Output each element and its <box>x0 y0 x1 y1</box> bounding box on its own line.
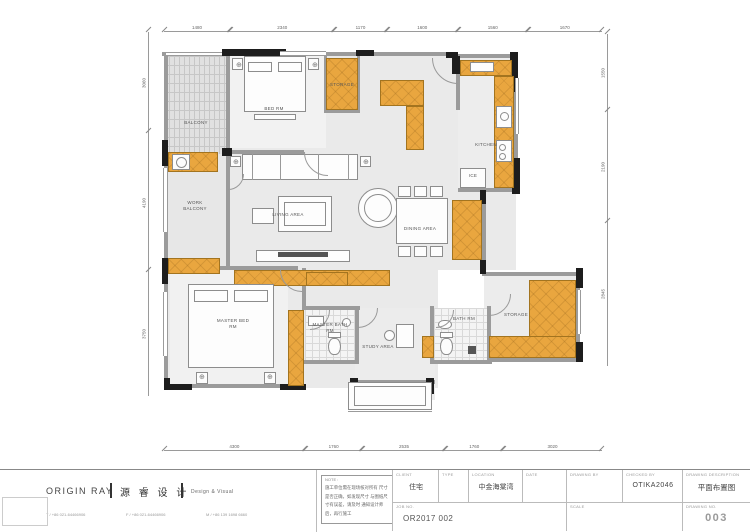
drawing-sheet: BALCONYBED RMSTORAGEKITCHENICEWORK BALCO… <box>0 0 750 531</box>
desk-chair <box>384 330 395 341</box>
dining-chair <box>414 246 427 257</box>
dining-chair <box>414 186 427 197</box>
window <box>577 290 581 334</box>
ceiling-light-icon: ⊕ <box>267 374 273 381</box>
logo-contact-m: M / +86 139 1698 6660 <box>206 512 247 517</box>
logo-text-en: ORIGIN RAY <box>46 486 113 496</box>
wall <box>226 152 230 266</box>
cell-drawing-no: DRAWING NO. 003 <box>682 502 750 531</box>
note-text: 施工单位需在现场核对所有 尺寸是否正确，如发现尺寸 与图纸尺寸有误差，请及时 通… <box>325 484 390 518</box>
lounge-chair-inner <box>364 194 392 222</box>
dimension-row-top: 148023401170160015601670 <box>164 31 602 39</box>
title-block: ORIGIN RAY 源 睿 设 计 Design & Visual T / +… <box>0 469 750 532</box>
storage-wardrobe <box>489 336 576 358</box>
ceiling-light-icon: ⊕ <box>199 374 205 381</box>
dimension-segment: 3060 <box>142 32 154 133</box>
sofa-line <box>280 154 281 180</box>
titleblock-divider <box>316 470 317 532</box>
wall-structure <box>576 268 583 288</box>
tv <box>278 252 328 257</box>
window <box>515 78 519 134</box>
kitchen-counter <box>494 76 514 188</box>
logo-contact-f: F / +86 021-64466906 <box>126 512 165 517</box>
dimension-segment: 1550 <box>601 34 613 112</box>
toilet <box>328 338 341 355</box>
dimension-segment: 1560 <box>458 31 528 39</box>
logo-divider <box>110 483 112 498</box>
wall <box>324 110 360 113</box>
room-label-living: LIVING AREA <box>258 212 318 218</box>
note-box: NOTE : 施工单位需在现场核对所有 尺寸是否正确，如发现尺寸 与图纸尺寸有误… <box>321 475 393 524</box>
client-label: CLIENT <box>396 472 412 477</box>
floor-plan: BALCONYBED RMSTORAGEKITCHENICEWORK BALCO… <box>152 22 618 448</box>
drawing-description-label: DRAWING DESCRIPTION <box>686 472 739 477</box>
drawing-description-value: 平面布置图 <box>683 482 750 493</box>
room-label-bed-rm: BED RM <box>244 106 304 112</box>
wall <box>304 360 358 364</box>
dimension-col-right: 155021902845 <box>601 34 613 366</box>
ceiling-light-icon: ⊕ <box>363 159 369 166</box>
drawing-no-value: 003 <box>683 512 750 524</box>
window <box>163 168 168 232</box>
room-label-storage-bottom: STORAGE <box>488 312 544 318</box>
date-label: DATE <box>526 472 538 477</box>
dimension-segment: 4190 <box>142 133 154 272</box>
logo-contact-t: T / +86 021-64466906 <box>46 512 85 517</box>
dimension-segment: 2845 <box>601 223 613 366</box>
cell-date: DATE <box>522 470 567 503</box>
sofa-line <box>252 154 253 180</box>
wall <box>484 272 580 276</box>
room-label-ice: ICE <box>460 173 486 179</box>
dimension-segment: 2190 <box>601 112 613 222</box>
room-label-work-balcony: WORK BALCONY <box>178 200 212 212</box>
window <box>166 52 222 56</box>
room-label-storage-top: STORAGE <box>324 82 360 88</box>
room-label-master-bed: MASTER BED RM <box>214 318 252 330</box>
room-label-master-bath: MASTER BATH RM <box>310 322 350 334</box>
dimension-col-left: 306041903750 <box>142 32 154 396</box>
dimension-segment: 1170 <box>334 31 386 39</box>
pillow <box>234 290 268 302</box>
dimension-row-bottom: 43001760253517603020 <box>164 450 602 458</box>
logo-tagline: Design & Visual <box>191 489 234 495</box>
location-label: LOCATION <box>472 472 495 477</box>
dimension-segment: 1480 <box>164 31 230 39</box>
wall <box>458 188 516 192</box>
note-label: NOTE : <box>325 477 338 482</box>
room-label-dining: DINING AREA <box>390 226 450 232</box>
room-label-balcony: BALCONY <box>164 120 228 126</box>
bed-bench <box>254 114 296 120</box>
dimension-segment: 3750 <box>142 272 154 396</box>
wall-structure <box>356 50 374 56</box>
sofa-line <box>348 154 349 180</box>
checked-by-value: OTIKA2046 <box>623 482 683 489</box>
master-wardrobe <box>288 310 304 386</box>
kitchen-appliance <box>470 62 494 72</box>
wall <box>226 56 230 152</box>
room-label-kitchen: KITCHEN <box>460 142 512 148</box>
dimension-segment: 1760 <box>305 450 363 458</box>
dimension-segment: 2340 <box>230 31 334 39</box>
hall-cabinet <box>380 80 424 106</box>
wall-structure <box>222 148 232 156</box>
dining-table <box>396 198 448 244</box>
pillow <box>278 62 302 72</box>
job-no-value: OR2017 002 <box>393 514 567 523</box>
logo-divider <box>181 483 183 498</box>
wall <box>488 358 580 362</box>
ceiling-light-icon: ⊕ <box>236 62 242 69</box>
hall-cabinet <box>406 106 424 150</box>
type-label: TYPE <box>442 472 454 477</box>
floor-drain <box>468 346 476 354</box>
wall <box>302 306 360 310</box>
wall <box>456 54 518 58</box>
dimension-segment: 2535 <box>362 450 445 458</box>
sofa <box>242 154 358 180</box>
drawing-by-label: DRAWING BY <box>570 472 599 477</box>
job-no-label: JOB NO. <box>396 504 414 509</box>
window <box>163 292 168 356</box>
checked-by-label: CHECKED BY <box>626 472 655 477</box>
dimension-segment: 1670 <box>528 31 602 39</box>
wall <box>434 360 492 364</box>
dining-chair <box>398 246 411 257</box>
cell-type: TYPE <box>438 470 469 503</box>
bath-cabinet <box>422 336 434 358</box>
ceiling-light-icon: ⊕ <box>233 159 239 166</box>
dimension-segment: 1600 <box>387 31 458 39</box>
corridor-cabinet <box>306 272 348 286</box>
wall-structure <box>222 49 286 56</box>
location-value: 中金海棠湾 <box>469 482 523 492</box>
toilet <box>440 338 453 355</box>
room-label-study: STUDY AREA <box>348 344 408 350</box>
logo-text-cn: 源 睿 设 计 <box>120 484 189 499</box>
sink-bowl <box>500 112 509 121</box>
wall-structure <box>166 384 192 390</box>
room-label-bath: BATH RM <box>442 316 486 322</box>
washer-drum <box>176 157 187 168</box>
pillow <box>248 62 272 72</box>
dimension-segment: 1760 <box>445 450 503 458</box>
wall-structure <box>576 342 583 362</box>
dimension-segment: 4300 <box>164 450 305 458</box>
cell-location: LOCATION 中金海棠湾 <box>468 470 523 503</box>
burner <box>499 153 506 160</box>
scale-label: SCALE <box>570 504 585 509</box>
sheet-corner-mark <box>2 497 48 526</box>
cell-checked-by: CHECKED BY OTIKA2046 <box>622 470 683 503</box>
drawing-no-label: DRAWING NO. <box>686 504 717 509</box>
dining-chair <box>398 186 411 197</box>
wall-structure <box>480 260 486 274</box>
dining-chair <box>430 186 443 197</box>
bay-window-inner <box>354 386 426 406</box>
pillow <box>194 290 228 302</box>
dining-chair <box>430 246 443 257</box>
cell-client: CLIENT 住宅 <box>392 470 439 503</box>
client-value: 住宅 <box>393 482 439 492</box>
cell-scale: SCALE <box>566 502 683 531</box>
dimension-segment: 3020 <box>503 450 602 458</box>
floor-balcony <box>164 56 228 154</box>
cell-drawing-by: DRAWING BY <box>566 470 623 503</box>
ceiling-light-icon: ⊕ <box>312 62 318 69</box>
cell-drawing-description: DRAWING DESCRIPTION 平面布置图 <box>682 470 750 503</box>
balcony-cabinet <box>168 258 220 274</box>
appliance-cabinet <box>452 200 482 260</box>
cell-job-no: JOB NO. OR2017 002 <box>392 502 567 531</box>
